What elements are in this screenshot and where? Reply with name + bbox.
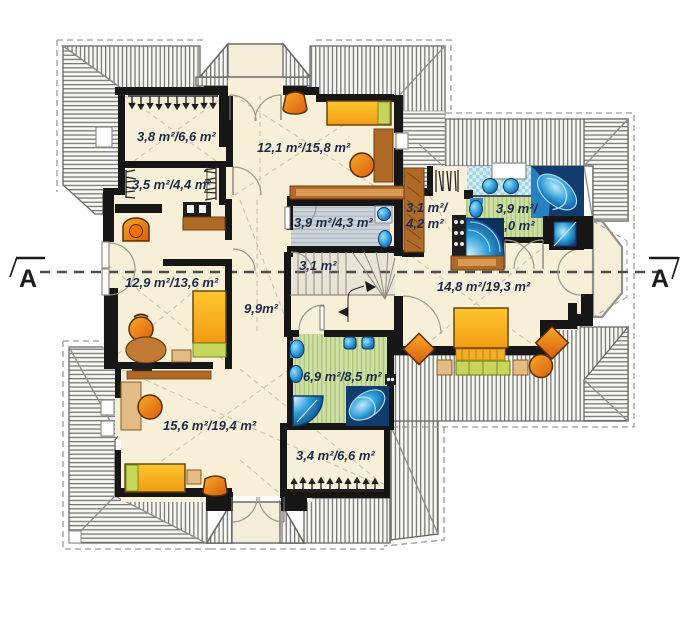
svg-text:4,2 m²: 4,2 m² xyxy=(405,216,444,231)
svg-text:15,6 m²/19,4 m²: 15,6 m²/19,4 m² xyxy=(163,418,257,433)
svg-text:6,9 m²/8,5 m²: 6,9 m²/8,5 m² xyxy=(303,369,382,384)
svg-text:7,0 m²: 7,0 m² xyxy=(497,218,535,233)
svg-text:3,9 m²/: 3,9 m²/ xyxy=(496,201,539,216)
svg-text:A: A xyxy=(19,265,37,293)
svg-text:9,9m²: 9,9m² xyxy=(244,301,279,316)
svg-text:14,8 m²/19,3 m²: 14,8 m²/19,3 m² xyxy=(437,279,531,294)
svg-text:3,5 m²/4,4 m²: 3,5 m²/4,4 m² xyxy=(132,177,211,192)
svg-text:3,1 m²: 3,1 m² xyxy=(299,258,337,273)
svg-text:A: A xyxy=(651,265,669,293)
svg-text:3,8 m²/6,6 m²: 3,8 m²/6,6 m² xyxy=(137,129,216,144)
svg-text:3,4 m²/6,6 m²: 3,4 m²/6,6 m² xyxy=(296,448,375,463)
svg-text:12,9 m²/13,6 m²: 12,9 m²/13,6 m² xyxy=(125,275,219,290)
svg-text:12,1 m²/15,8 m²: 12,1 m²/15,8 m² xyxy=(257,140,351,155)
svg-text:3,1 m²/: 3,1 m²/ xyxy=(406,200,449,215)
svg-text:3,9 m²/4,3 m²: 3,9 m²/4,3 m² xyxy=(294,215,373,230)
